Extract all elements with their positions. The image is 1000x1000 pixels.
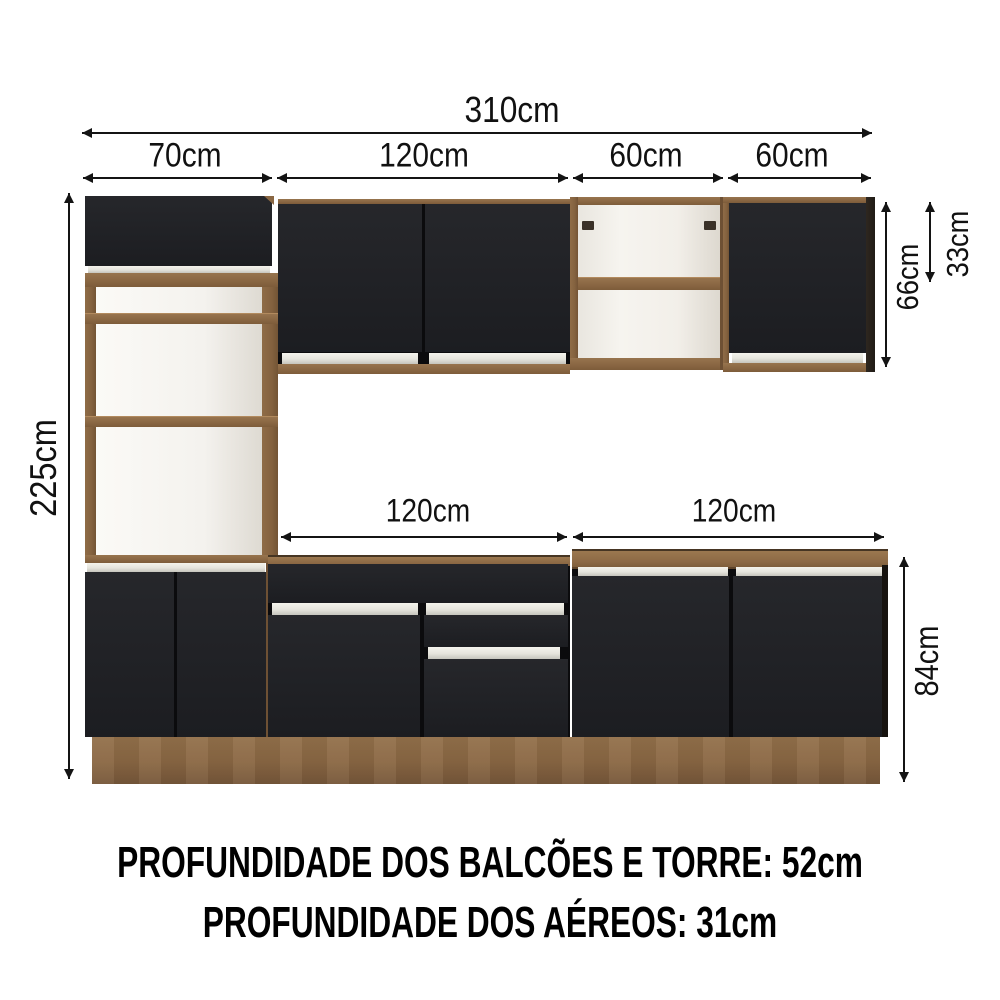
dim-arrow-uppers-33 [929, 202, 931, 282]
base-left-top-drawer [268, 564, 568, 603]
kitchen-dimension-diagram: 310cm 70cm 120cm 60cm 60cm 225cm 15cm 37… [0, 0, 1000, 1000]
base-left-door [268, 615, 420, 737]
upper-open-left-panel [570, 197, 578, 370]
upper-120-bottom-edge [278, 364, 570, 374]
upper-open-hinge-right [704, 221, 716, 230]
upper-60-door [729, 203, 866, 353]
dim-arrow-section-120 [277, 177, 568, 179]
tower-top-door [85, 196, 272, 266]
dim-label-total-width: 310cm [464, 89, 559, 131]
dim-arrow-counter-left [281, 536, 567, 538]
dim-arrow-counter-right [573, 536, 884, 538]
base-left-drawer-2 [424, 615, 568, 647]
base-right-door-left [572, 576, 729, 737]
upper-60-bottom-edge [723, 363, 875, 372]
dim-arrow-total-height [68, 193, 70, 779]
dim-arrow-total-width [82, 132, 872, 134]
upper-open-bottom-board [570, 358, 727, 370]
upper-open-hinge-left [582, 221, 594, 230]
tower-niche-bottom-board [85, 555, 278, 563]
dim-label-section-70: 70cm [148, 137, 221, 176]
base-left-drawer-3 [424, 659, 568, 737]
footer-depth-counters: PROFUNDIDADE DOS BALCÕES E TORRE: 52cm [117, 838, 863, 888]
tower-unit [85, 196, 278, 784]
upper-open-shelf-60 [570, 197, 727, 370]
upper-cabinet-120 [278, 199, 570, 374]
dim-label-section-60a: 60cm [609, 137, 682, 176]
base-cabinet-right-120 [572, 549, 888, 737]
base-right-side-panel [882, 565, 888, 737]
upper-60-right-side-panel [866, 197, 875, 372]
upper-120-door-right [425, 204, 570, 352]
dim-label-counter-right: 120cm [692, 493, 777, 530]
tower-base-doors [85, 572, 266, 737]
tower-base-door-right [177, 572, 266, 737]
dim-label-section-60b: 60cm [755, 137, 828, 176]
dim-arrow-section-60b [728, 177, 871, 179]
tower-shelf-1 [85, 313, 278, 324]
footer-depth-uppers: PROFUNDIDADE DOS AÉREOS: 31cm [203, 898, 777, 948]
dim-arrow-section-60a [573, 177, 723, 179]
base-right-door-right [733, 576, 882, 737]
dim-arrow-base-84 [903, 557, 905, 782]
upper-120-door-left [278, 204, 422, 352]
dim-arrow-section-70 [83, 177, 272, 179]
dim-label-total-height: 225cm [23, 419, 65, 517]
upper-cabinet-60 [723, 197, 875, 372]
dim-label-counter-left: 120cm [386, 493, 471, 530]
base-cabinet-left-120 [268, 555, 570, 737]
base-right-countertop [572, 549, 888, 569]
dim-arrow-uppers-66 [885, 202, 887, 367]
dim-label-uppers-33: 33cm [940, 211, 976, 278]
upper-open-middle-shelf [578, 277, 720, 290]
upper-open-top-board [570, 197, 727, 205]
dim-label-uppers-66: 66cm [890, 244, 926, 311]
tower-shelf-2 [85, 416, 278, 427]
tower-base-door-left [85, 572, 174, 737]
dim-label-base-84: 84cm [908, 625, 946, 696]
dim-label-section-120: 120cm [379, 137, 469, 176]
